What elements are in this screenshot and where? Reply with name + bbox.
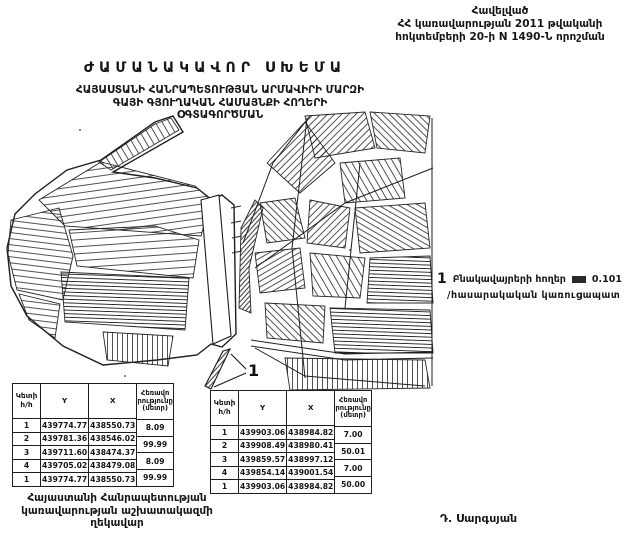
appendix-line-2: ՀՀ կառավարության 2011 թվականի <box>369 18 631 31</box>
cell-point: 2 <box>13 432 41 446</box>
urban-block <box>265 303 325 343</box>
cell-y: 439908.49 <box>239 439 287 453</box>
cell-y: 439781.36 <box>41 432 89 446</box>
distance-header-line3: (մետր) <box>335 412 371 419</box>
coordinate-table-right-grid: Կետի հ/հ Y X 1439903.06438984.82 2439908… <box>210 390 335 494</box>
cell-point: 3 <box>211 453 239 467</box>
cell-point: 3 <box>13 446 41 460</box>
col-header-point: Կետի հ/հ <box>211 391 239 426</box>
signature-line-1: Հայաստանի Հանրապետության <box>6 492 228 505</box>
parcel-1-label: 1 <box>248 361 259 380</box>
signature-line-3: ղեկավար <box>6 517 228 530</box>
col-header-distance: Հեռավո րությունը (մետր) <box>335 391 371 427</box>
urban-block <box>310 253 365 298</box>
field-parcel <box>19 294 60 338</box>
cell-point: 2 <box>211 439 239 453</box>
distance-column: Հեռավո րությունը (մետր) 7.00 50.01 7.00 … <box>334 390 372 494</box>
cell-y: 439859.57 <box>239 453 287 467</box>
cell-point: 1 <box>211 426 239 440</box>
urban-block <box>340 158 405 203</box>
cell-distance: 7.00 <box>335 460 371 477</box>
legend-entry: 1 Բնակավայրերի հողեր 0.101 <box>437 271 635 287</box>
cell-point: 1 <box>13 419 41 433</box>
signature-block: Հայաստանի Հանրապետության կառավարության ա… <box>6 492 228 530</box>
map-legend: 1 Բնակավայրերի հողեր 0.101 /հասարակական … <box>437 271 635 301</box>
field-parcel <box>103 332 173 366</box>
col-header-distance: Հեռավո րությունը (մետր) <box>137 384 173 420</box>
col-header-point-line2: հ/հ <box>218 407 230 416</box>
cell-distance: 8.09 <box>137 420 173 437</box>
cell-x: 438550.73 <box>89 473 137 487</box>
appendix-line-1: Հավելված <box>369 5 631 18</box>
table-row: 3439711.60438474.37 <box>13 446 137 460</box>
cell-distance: 50.00 <box>335 477 371 493</box>
cell-point: 4 <box>211 466 239 480</box>
table-row: 2439908.49438980.41 <box>211 439 335 453</box>
coordinate-table-right: Կետի հ/հ Y X 1439903.06438984.82 2439908… <box>210 390 372 494</box>
corridor-parcel <box>201 195 231 344</box>
urban-block <box>367 256 433 303</box>
cell-x: 438984.82 <box>287 480 335 494</box>
col-header-point-line2: հ/հ <box>20 400 32 409</box>
cell-x: 438546.02 <box>89 432 137 446</box>
field-parcel-dense <box>61 272 189 330</box>
cell-distance: 50.01 <box>335 444 371 461</box>
field-parcel <box>39 162 211 236</box>
urban-block <box>285 358 430 390</box>
table-row: 1439903.06438984.82 <box>211 426 335 440</box>
table-row: 4439854.14439001.54 <box>211 466 335 480</box>
legend-line-2: /հասարակական կառուցապատ <box>447 290 635 301</box>
coordinate-table-left: Կետի հ/հ Y X 1439774.77438550.73 2439781… <box>12 383 174 487</box>
cell-y: 439705.02 <box>41 459 89 473</box>
appendix-note: Հավելված ՀՀ կառավարության 2011 թվականի հ… <box>369 5 631 44</box>
cell-x: 438474.37 <box>89 446 137 460</box>
table-row: 2439781.36438546.02 <box>13 432 137 446</box>
cell-y: 439903.06 <box>239 426 287 440</box>
scanned-document-page: Հավելված ՀՀ կառավարության 2011 թվականի հ… <box>0 0 639 537</box>
urban-block <box>330 308 433 353</box>
scan-speck <box>79 129 81 131</box>
page-title: ԺԱՄԱՆԱԿԱՎՈՐ ՍԽԵՄԱ <box>0 60 430 76</box>
legend-label: Բնակավայրերի հողեր <box>453 274 566 285</box>
urban-block <box>255 248 305 293</box>
cell-x: 438997.12 <box>287 453 335 467</box>
coordinate-table-left-grid: Կետի հ/հ Y X 1439774.77438550.73 2439781… <box>12 383 137 487</box>
scan-speck <box>349 249 351 251</box>
cell-point: 4 <box>13 459 41 473</box>
table-row: 4439705.02438479.08 <box>13 459 137 473</box>
cell-y: 439854.14 <box>239 466 287 480</box>
cell-x: 438550.73 <box>89 419 137 433</box>
signatory-name: Դ. Սարգսյան <box>440 512 517 525</box>
cell-y: 439903.06 <box>239 480 287 494</box>
cell-distance: 7.00 <box>335 427 371 444</box>
ink-smudge <box>572 276 586 283</box>
cell-x: 438479.08 <box>89 459 137 473</box>
col-header-y: Y <box>239 391 287 426</box>
scan-speck <box>124 375 126 377</box>
cell-distance: 99.99 <box>137 470 173 486</box>
table-row: 1439903.06438984.82 <box>211 480 335 494</box>
urban-block <box>370 112 430 153</box>
urban-block <box>307 200 350 248</box>
cell-y: 439774.77 <box>41 473 89 487</box>
col-header-x: X <box>89 384 137 419</box>
cell-distance: 99.99 <box>137 437 173 454</box>
cell-x: 439001.54 <box>287 466 335 480</box>
col-header-y: Y <box>41 384 89 419</box>
cell-y: 439774.77 <box>41 419 89 433</box>
field-parcel <box>69 226 199 278</box>
col-header-x: X <box>287 391 335 426</box>
cell-y: 439711.60 <box>41 446 89 460</box>
table-row: 3439859.57438997.12 <box>211 453 335 467</box>
cell-x: 438980.41 <box>287 439 335 453</box>
parcel-1-sliver <box>205 349 230 389</box>
legend-area-value: 0.101 <box>592 274 622 285</box>
legend-marker: 1 <box>437 271 447 287</box>
cell-x: 438984.82 <box>287 426 335 440</box>
urban-block <box>355 203 430 253</box>
signature-line-2: կառավարության աշխատակազմի <box>6 505 228 518</box>
field-parcel <box>99 118 179 170</box>
cell-point: 1 <box>13 473 41 487</box>
cell-point: 1 <box>211 480 239 494</box>
subtitle-line-1: ՀԱՅԱՍՏԱՆԻ ՀԱՆՐԱՊԵՏՈՒԹՅԱՆ ԱՐՄԱՎԻՐԻ ՄԱՐԶԻ <box>15 84 425 97</box>
distance-column: Հեռավո րությունը (մետր) 8.09 99.99 8.09 … <box>136 383 174 487</box>
appendix-line-3: հոկտեմբերի 20-ի N 1490-Ն որոշման <box>369 31 631 44</box>
cell-distance: 8.09 <box>137 453 173 470</box>
table-row: 1439774.77438550.73 <box>13 419 137 433</box>
cadastral-map: 1 <box>5 108 435 393</box>
distance-header-line3: (մետր) <box>137 405 173 412</box>
col-header-point: Կետի հ/հ <box>13 384 41 419</box>
table-row: 1439774.77438550.73 <box>13 473 137 487</box>
